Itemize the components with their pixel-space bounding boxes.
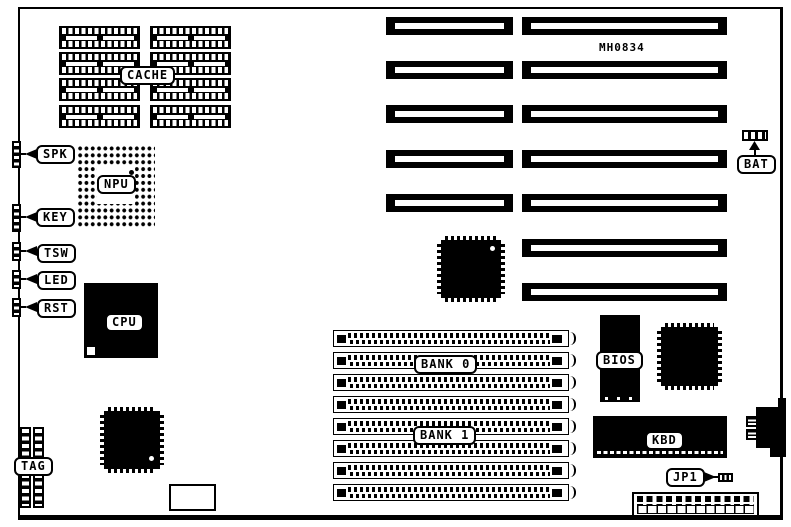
rst-label: RST — [37, 299, 76, 318]
expansion-slot-segment — [522, 239, 727, 257]
expansion-slot-segment — [386, 194, 513, 212]
led-label: LED — [37, 271, 76, 290]
cache-chip — [150, 105, 231, 128]
tsw-label: TSW — [37, 244, 76, 263]
keyboard-din-connector — [756, 407, 786, 448]
expansion-slot-segment — [386, 17, 513, 35]
expansion-slot-segment — [386, 61, 513, 79]
board-part-number: MH0834 — [599, 41, 645, 54]
cache-chip — [59, 26, 140, 49]
din-pin-block — [746, 416, 758, 427]
qfp-chip — [100, 407, 164, 473]
qfp-chip — [657, 323, 722, 390]
simm-socket — [333, 484, 569, 501]
expansion-slot-segment — [386, 150, 513, 168]
jp1-label: JP1 — [666, 468, 705, 487]
simm-socket — [333, 330, 569, 347]
bios-label: BIOS — [596, 351, 643, 370]
motherboard-diagram: CACHE NPU SPK KEY TSW LED RST CPU TAG — [0, 0, 791, 527]
simm-socket — [333, 374, 569, 391]
cache-label: CACHE — [120, 66, 175, 85]
expansion-slot-segment — [522, 61, 727, 79]
cache-chip — [150, 26, 231, 49]
npu-label: NPU — [97, 175, 136, 194]
expansion-slot-segment — [522, 283, 727, 301]
spk-label: SPK — [36, 145, 75, 164]
bat-connector — [742, 130, 768, 141]
key-connector — [12, 204, 21, 232]
expansion-slot-segment — [522, 105, 727, 123]
simm-socket — [333, 462, 569, 479]
power-connector — [632, 492, 759, 518]
expansion-slot-segment — [522, 194, 727, 212]
key-label: KEY — [36, 208, 75, 227]
din-pin-block — [746, 429, 758, 440]
bank0-label: BANK 0 — [414, 355, 477, 374]
cache-chip — [59, 105, 140, 128]
bank1-label: BANK 1 — [413, 426, 476, 445]
expansion-slot-segment — [522, 150, 727, 168]
expansion-slot-segment — [386, 105, 513, 123]
oscillator — [169, 484, 216, 511]
expansion-slot-segment — [522, 17, 727, 35]
tag-label: TAG — [14, 457, 53, 476]
kbd-label: KBD — [645, 431, 684, 450]
keyboard-din-connector — [770, 447, 786, 457]
keyboard-din-connector — [778, 398, 786, 408]
bat-label: BAT — [737, 155, 776, 174]
simm-socket — [333, 396, 569, 413]
jp1-jumper — [718, 473, 733, 482]
cpu-label: CPU — [105, 313, 144, 332]
qfp-chip — [437, 236, 505, 302]
